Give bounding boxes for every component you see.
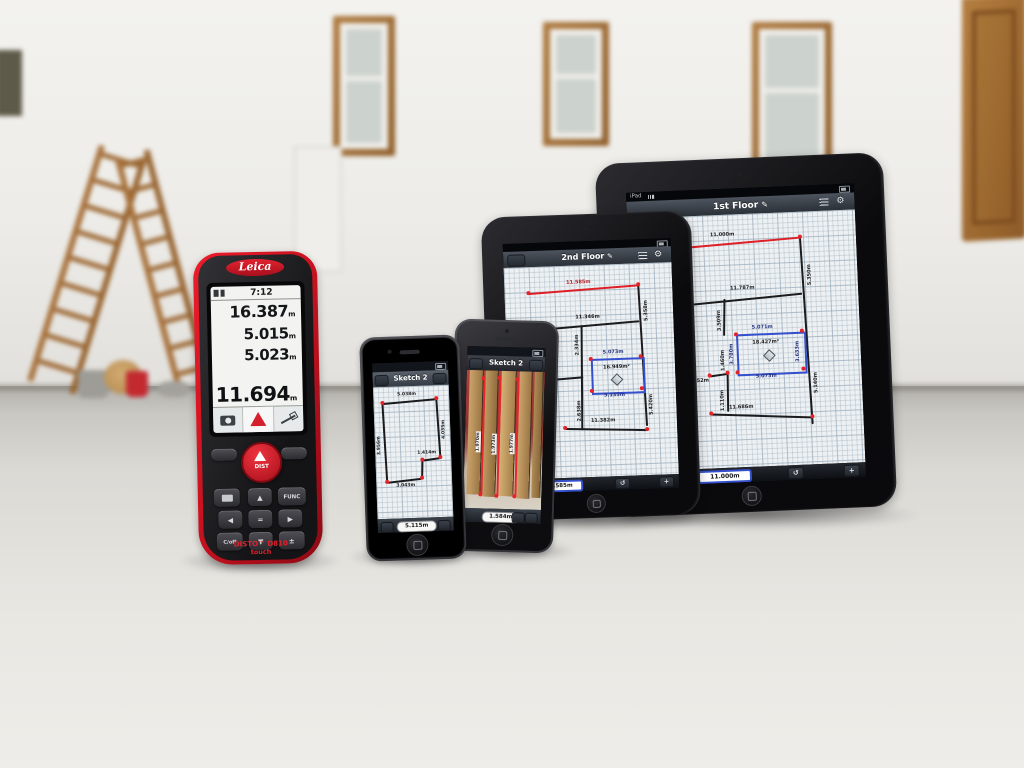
iphone-screen: Sketch 2 1.970m 1.973m 1.97	[463, 346, 546, 524]
dim-label: 1.110m	[720, 390, 726, 411]
home-button-glyph	[498, 531, 507, 540]
dim-label: 1.460m	[721, 350, 727, 371]
front-camera	[505, 329, 509, 333]
func-key[interactable]: FUNC	[278, 487, 306, 506]
earpiece	[496, 337, 518, 342]
bottom-toolbar: 1.584m	[463, 508, 541, 524]
tool-button[interactable]	[381, 521, 394, 532]
disto-screen-bezel: 7:12 16.387m 5.015m 5.023m 11.694m	[206, 281, 307, 437]
dim-label: 5.140m	[814, 372, 820, 393]
open-wood-door	[962, 0, 1024, 242]
disto-time: 7:12	[250, 288, 273, 298]
door-panel-inset	[972, 9, 1016, 225]
edit-icon[interactable]: ✎	[761, 200, 768, 209]
plan-line	[382, 398, 436, 405]
window-pane	[346, 29, 382, 143]
back-button[interactable]	[507, 254, 525, 267]
page-title: 2nd Floor	[561, 251, 604, 261]
iphone-4: Sketch 2 5.038m 4.035m 3.956m 1.414m	[359, 334, 467, 561]
plan-point	[438, 455, 442, 459]
measure-point	[498, 376, 502, 380]
photo-scene: iPad 1st Floor ✎ ⚙	[0, 0, 1024, 768]
sketch-canvas[interactable]: 5.038m 4.035m 3.956m 1.414m 3.043m	[373, 385, 454, 520]
dim-label: 2.638m	[577, 400, 583, 421]
undo-button[interactable]: ↺	[615, 478, 630, 490]
window-bar	[765, 88, 819, 93]
dim-label: 11.787m	[730, 286, 755, 292]
dim-label: 5.350m	[807, 264, 813, 285]
main-result: 11.694m	[215, 381, 296, 407]
dim-label: 5.071m	[752, 325, 773, 331]
red-bucket	[126, 371, 148, 397]
add-button[interactable]: +	[659, 476, 674, 488]
dim-label: 3.780m	[729, 343, 735, 364]
right-key[interactable]: ▶	[278, 509, 302, 527]
softkey-row	[213, 405, 304, 433]
plan-point	[810, 414, 814, 418]
list-icon[interactable]	[638, 252, 647, 259]
dim-label: 5.420m	[649, 394, 655, 415]
photo-canvas[interactable]: 1.970m 1.973m 1.977m	[463, 370, 545, 510]
gear-icon[interactable]: ⚙	[654, 250, 662, 259]
measurement-list: 16.387m 5.015m 5.023m	[229, 301, 296, 367]
window-center	[543, 22, 609, 146]
unit-label: m	[289, 353, 296, 361]
result-readout[interactable]: 5.115m	[397, 520, 437, 532]
window-left	[333, 16, 395, 156]
plan-line-top	[528, 284, 638, 295]
left-key[interactable]: ◀	[218, 510, 242, 528]
measure-point	[494, 494, 498, 498]
window-edge-left	[0, 50, 22, 116]
page-title: 1st Floor	[713, 200, 758, 212]
plan-point	[434, 396, 438, 400]
area-label: 16.949m²	[603, 365, 630, 371]
home-button-glyph	[593, 500, 601, 508]
dim-label: 11.000m	[710, 232, 735, 238]
dim-label: 11.585m	[566, 280, 591, 286]
gear-icon[interactable]: ⚙	[836, 197, 844, 206]
measure-label: 1.977m	[509, 433, 515, 454]
earpiece	[400, 350, 420, 355]
measure-label: 1.970m	[476, 431, 482, 452]
plan-point	[798, 235, 802, 239]
disto-status-bar: 7:12	[210, 285, 300, 301]
dim-label: 3.509m	[717, 310, 723, 331]
tilt-softkey[interactable]	[274, 406, 304, 432]
window-pane	[556, 35, 596, 133]
dim-label: 3.633m	[795, 341, 801, 362]
bottom-toolbar: 5.115m	[377, 517, 453, 534]
list-icon[interactable]	[819, 198, 828, 205]
overflow-button[interactable]	[529, 359, 543, 370]
gray-sack	[158, 381, 190, 397]
edit-icon[interactable]: ✎	[607, 252, 613, 260]
unit-label: m	[289, 332, 296, 340]
iphone-screen: Sketch 2 5.038m 4.035m 3.956m 1.414m	[372, 361, 454, 534]
plan-point	[420, 476, 424, 480]
dim-label: 5.073m	[756, 374, 777, 380]
plan-point	[636, 282, 640, 286]
disto-screen: 7:12 16.387m 5.015m 5.023m 11.694m	[210, 285, 303, 433]
home-button-glyph	[413, 541, 422, 550]
memory-icon	[214, 290, 219, 297]
plan-line-h2	[683, 293, 803, 307]
main-result-value: 11.694	[215, 381, 290, 407]
unit-label: m	[290, 394, 297, 402]
dim-label: 2.334m	[575, 334, 581, 355]
camera-softkey[interactable]	[213, 407, 244, 433]
dim-label: 3.956m	[378, 436, 383, 455]
measure-point	[516, 377, 520, 381]
measurement-value: 5.023	[244, 345, 289, 364]
dim-label: 11.382m	[591, 418, 616, 424]
tool-button[interactable]	[438, 519, 451, 530]
measurement-value: 5.015	[244, 324, 289, 343]
leica-triangle-softkey[interactable]	[243, 407, 274, 433]
dim-label: 5.038m	[397, 393, 416, 398]
equals-key[interactable]: =	[248, 510, 272, 528]
add-button[interactable]: +	[844, 464, 860, 477]
plan-point	[645, 427, 649, 431]
dim-label: 5.073m	[602, 350, 623, 356]
plan-line-v2	[723, 299, 725, 336]
bluetooth-icon	[221, 290, 225, 297]
window-pane	[765, 35, 819, 161]
window-bar	[346, 76, 382, 81]
plan-line-bottom	[711, 414, 812, 419]
disto-d810: Leica 7:12 16.387m 5.015m 5.023m 11.694m	[193, 251, 324, 566]
plan-line	[381, 404, 388, 483]
dist-label: DIST	[243, 464, 280, 471]
wifi-icon	[648, 195, 654, 199]
stepladder	[28, 148, 198, 398]
dim-label: 5.135m	[604, 393, 625, 399]
unit-label: m	[288, 310, 295, 318]
dim-label: 5.358m	[644, 300, 650, 321]
overflow-button[interactable]	[432, 372, 446, 383]
red-triangle-icon	[250, 412, 266, 426]
camera-key-icon	[221, 495, 232, 502]
back-button[interactable]	[469, 357, 483, 368]
dim-label: 3.043m	[396, 484, 415, 489]
page-title: Sketch 2	[489, 359, 523, 368]
result-readout[interactable]: 11.000m	[698, 469, 752, 484]
dist-triangle-icon	[254, 451, 266, 461]
tool-button[interactable]	[512, 512, 525, 523]
dim-label: 1.414m	[417, 451, 436, 456]
dim-label: 11.346m	[575, 315, 600, 321]
camera-key[interactable]	[214, 488, 240, 507]
camera-icon	[220, 415, 235, 425]
window-bar	[556, 74, 596, 79]
undo-button[interactable]: ↺	[788, 467, 804, 480]
tool-button[interactable]	[525, 512, 538, 523]
plan-line-bottom	[565, 428, 647, 431]
page-title: Sketch 2	[393, 373, 427, 382]
measure-label: 1.973m	[491, 434, 497, 455]
side-key-left[interactable]	[211, 448, 237, 461]
side-key-right[interactable]	[281, 447, 307, 460]
wood-plank	[531, 372, 543, 498]
back-button[interactable]	[374, 374, 388, 385]
up-key[interactable]: ▲	[248, 488, 272, 506]
window-right	[752, 22, 832, 174]
dim-label: 4.035m	[442, 420, 447, 439]
measurement-value: 16.387	[229, 301, 288, 321]
dim-label: 11.686m	[729, 405, 754, 411]
plan-point	[725, 371, 729, 375]
home-button-glyph	[748, 492, 757, 501]
